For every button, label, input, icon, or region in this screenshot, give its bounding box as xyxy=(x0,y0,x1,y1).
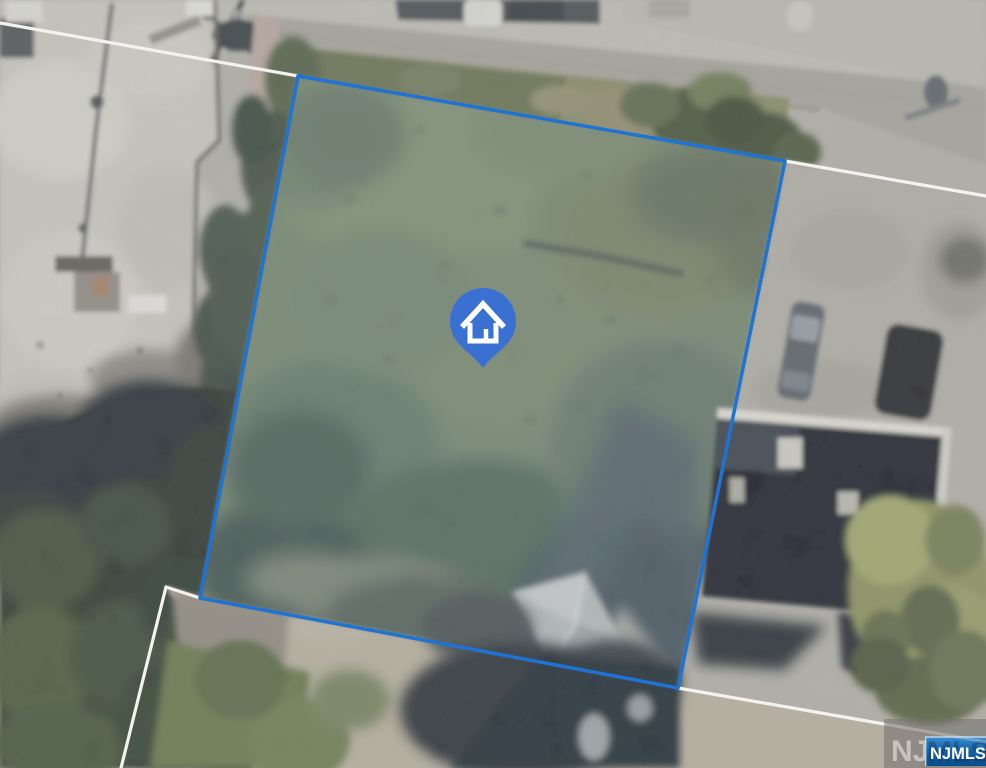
svg-text:NJMLS: NJMLS xyxy=(930,745,986,763)
